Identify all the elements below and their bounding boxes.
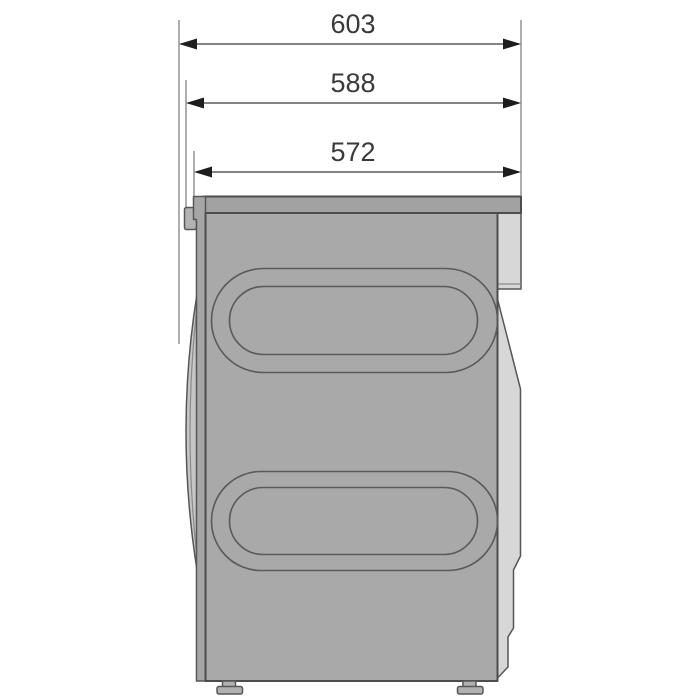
arrowhead-right-603-icon xyxy=(503,39,521,50)
dimension-588: 588 xyxy=(186,68,521,109)
front-foot xyxy=(217,681,243,694)
arrowhead-left-588-icon xyxy=(186,98,204,109)
appliance-dimension-diagram: 603 588 572 xyxy=(0,0,700,700)
dimension-label-588: 588 xyxy=(330,68,375,98)
dimension-label-603: 603 xyxy=(330,9,375,39)
door-bulge xyxy=(186,294,197,570)
arrowhead-right-588-icon xyxy=(503,98,521,109)
dimension-603: 603 xyxy=(179,9,521,50)
top-lid xyxy=(204,197,522,214)
rear-top-panel xyxy=(498,213,522,289)
dimension-label-572: 572 xyxy=(330,137,375,167)
front-foot-base xyxy=(217,687,243,695)
dimension-572: 572 xyxy=(194,137,521,178)
arrowhead-left-603-icon xyxy=(179,39,197,50)
arrowhead-right-572-icon xyxy=(503,167,521,178)
arrowhead-left-572-icon xyxy=(194,167,212,178)
rear-foot xyxy=(458,681,484,694)
machine-side-view xyxy=(185,197,522,695)
cabinet-side-panel xyxy=(206,213,498,681)
rear-foot-base xyxy=(458,687,484,695)
rear-lower-panel xyxy=(498,299,521,678)
